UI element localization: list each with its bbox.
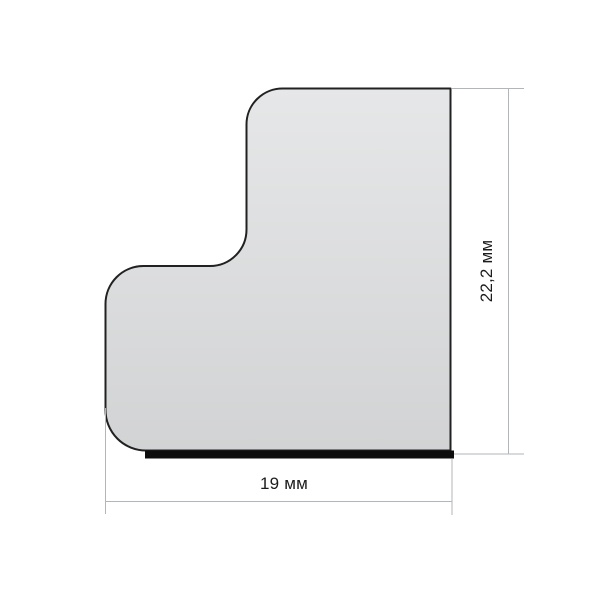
height-dimension-label: 22,2 мм: [477, 240, 497, 303]
profile-diagram-svg: [0, 0, 600, 600]
adhesive-strip: [145, 451, 454, 459]
profile-shape: [106, 88, 451, 450]
technical-drawing-canvas: 19 мм 22,2 мм: [0, 0, 600, 600]
width-dimension-label: 19 мм: [260, 474, 308, 494]
